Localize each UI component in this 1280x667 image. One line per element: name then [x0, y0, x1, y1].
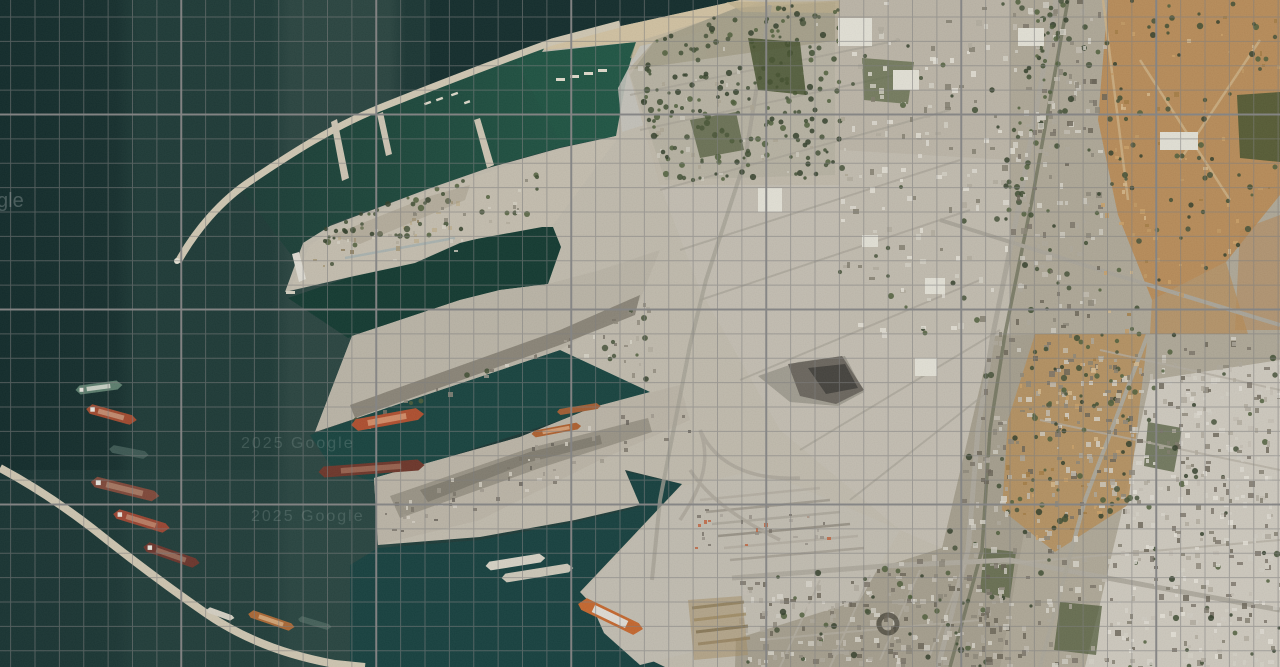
svg-text:2025 Google: 2025 Google — [251, 508, 365, 525]
svg-text:2025 Google: 2025 Google — [241, 435, 355, 452]
svg-text:gle: gle — [0, 190, 24, 212]
